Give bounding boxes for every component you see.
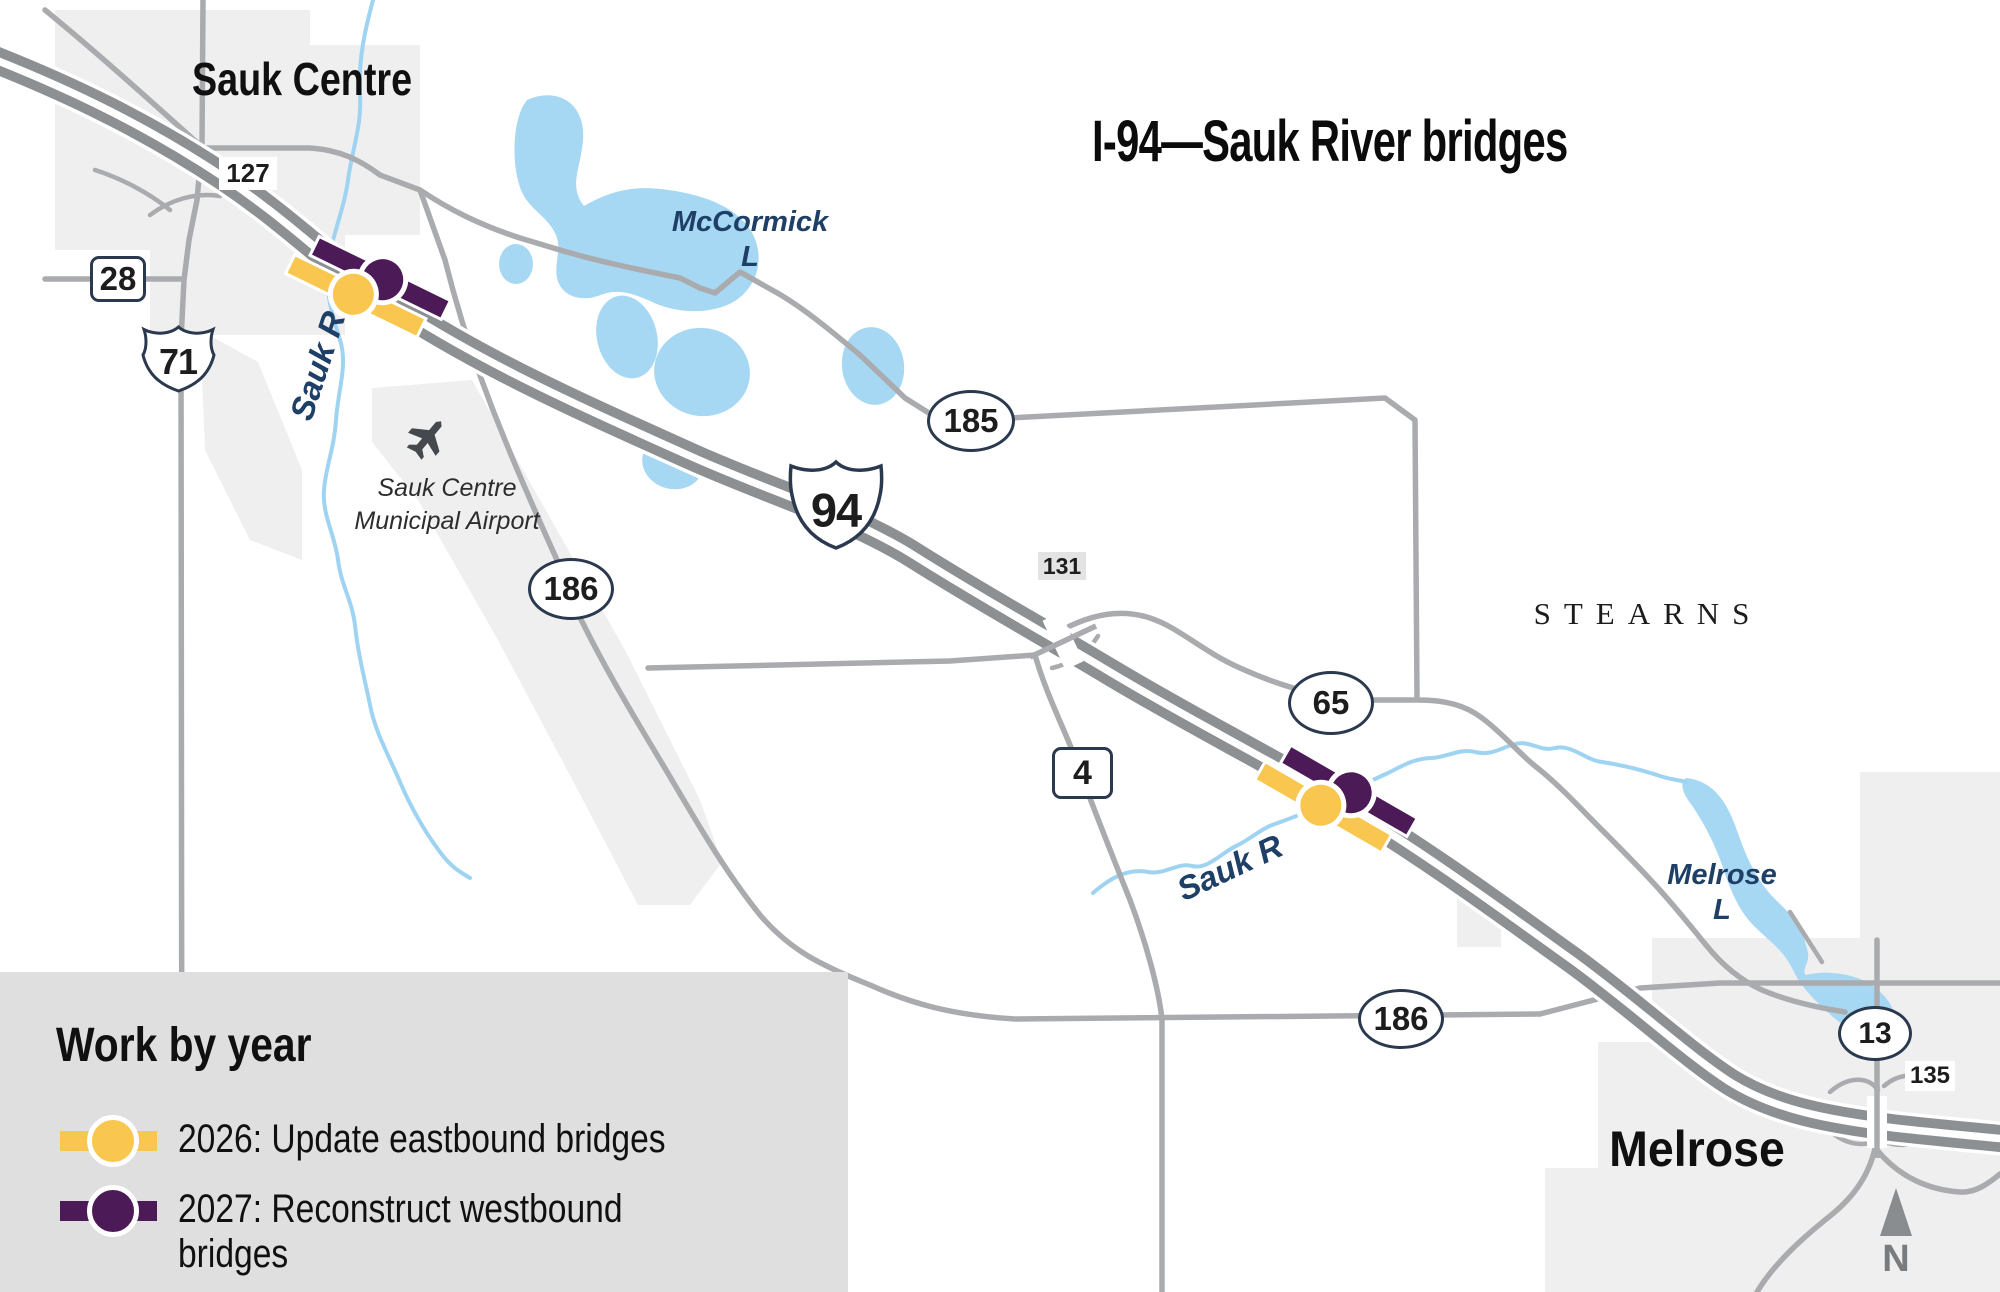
route-number: 127 (226, 158, 269, 189)
melrose-shade (1545, 772, 2000, 1292)
route-number: 4 (1073, 754, 1092, 793)
lake-label-line: L (1667, 893, 1777, 928)
route-shield-13: 13 (1838, 1006, 1912, 1061)
route-number: 185 (943, 402, 998, 440)
lake-label-line: L (672, 240, 828, 275)
route-number: 135 (1910, 1062, 1950, 1090)
city-label-sauk-centre: Sauk Centre (192, 52, 412, 106)
route-shield-186-south: 186 (1358, 989, 1444, 1049)
legend-panel: Work by year 2026: Update eastbound brid… (0, 972, 848, 1292)
route-number: 65 (1313, 684, 1350, 722)
mccormick-lake (514, 95, 758, 311)
legend-heading: Work by year (56, 1018, 312, 1073)
project-map: I-94—Sauk River bridges Sauk Centre Melr… (0, 0, 2000, 1292)
lake-label-line: McCormick (672, 205, 828, 240)
airport-label: Sauk Centre Municipal Airport (354, 472, 539, 537)
pond (499, 244, 533, 284)
route-tag-135: 135 (1905, 1061, 1955, 1091)
airport-label-line: Sauk Centre (354, 472, 539, 505)
legend-dot-2027 (87, 1185, 139, 1237)
route-number: 28 (100, 260, 137, 298)
route-tag-131: 131 (1038, 552, 1086, 580)
route-tag-127: 127 (219, 157, 277, 190)
map-title: I-94—Sauk River bridges (1092, 108, 1567, 175)
route-number: 13 (1858, 1017, 1891, 1051)
road-interchange-west (648, 655, 1035, 668)
legend-item-2027: 2027: Reconstruct westbound bridges (178, 1187, 741, 1277)
route-shield-65: 65 (1288, 671, 1374, 735)
city-label-melrose: Melrose (1609, 1120, 1785, 1178)
route-shield-4: 4 (1052, 747, 1113, 799)
route-number: 186 (543, 570, 598, 608)
route-number: 131 (1043, 553, 1081, 580)
interstate-94-number: 94 (811, 483, 861, 538)
airport-label-line: Municipal Airport (354, 505, 539, 538)
lake-label-line: Melrose (1667, 858, 1777, 893)
route-shield-28: 28 (90, 256, 146, 302)
legend-dot-2026 (87, 1115, 139, 1167)
route-number: 186 (1373, 1000, 1428, 1038)
legend-item-2026: 2026: Update eastbound bridges (178, 1117, 666, 1162)
sauk-centre-shade-south (200, 330, 302, 560)
county-label: STEARNS (1534, 596, 1763, 632)
route-shield-185: 185 (927, 390, 1015, 452)
pond (647, 320, 757, 423)
lake-label-mccormick: McCormick L (672, 205, 828, 276)
north-label: N (1882, 1238, 1909, 1281)
us-71-number: 71 (159, 341, 197, 383)
route-shield-186-north: 186 (528, 558, 614, 620)
lake-label-melrose: Melrose L (1667, 858, 1777, 929)
